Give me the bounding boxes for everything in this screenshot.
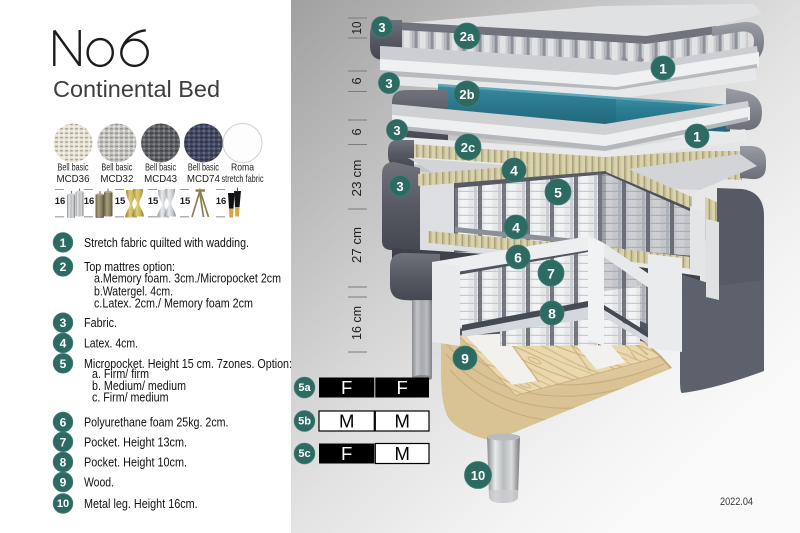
svg-text:Roma: Roma bbox=[231, 162, 254, 174]
svg-text:stretch fabric: stretch fabric bbox=[222, 173, 264, 185]
svg-text:M: M bbox=[339, 411, 354, 432]
svg-text:F: F bbox=[396, 377, 407, 398]
svg-text:5: 5 bbox=[60, 357, 67, 371]
svg-text:2: 2 bbox=[60, 260, 67, 274]
svg-text:5b: 5b bbox=[298, 416, 311, 428]
svg-text:10: 10 bbox=[350, 21, 364, 34]
svg-text:Bell basic: Bell basic bbox=[188, 162, 219, 174]
svg-text:Latex. 4cm.: Latex. 4cm. bbox=[84, 335, 138, 350]
svg-text:6: 6 bbox=[350, 77, 364, 84]
svg-text:Polyurethane foam 25kg. 2cm.: Polyurethane foam 25kg. 2cm. bbox=[84, 415, 229, 430]
svg-text:8: 8 bbox=[60, 456, 67, 470]
svg-text:Continental Bed: Continental Bed bbox=[53, 76, 220, 102]
svg-text:3: 3 bbox=[385, 76, 392, 91]
svg-text:7: 7 bbox=[60, 435, 67, 449]
svg-text:16 cm: 16 cm bbox=[350, 306, 364, 340]
svg-text:Wood.: Wood. bbox=[84, 475, 114, 490]
svg-text:Bell basic: Bell basic bbox=[101, 162, 132, 174]
svg-text:1: 1 bbox=[693, 129, 701, 145]
svg-text:MCD32: MCD32 bbox=[100, 173, 133, 185]
svg-text:5a: 5a bbox=[298, 382, 311, 394]
svg-text:5: 5 bbox=[554, 185, 562, 201]
svg-text:6: 6 bbox=[514, 250, 522, 266]
svg-text:2a: 2a bbox=[460, 29, 475, 44]
svg-text:4: 4 bbox=[510, 163, 518, 179]
svg-text:1: 1 bbox=[659, 61, 667, 77]
svg-text:Fabric.: Fabric. bbox=[84, 315, 117, 330]
svg-text:9: 9 bbox=[461, 351, 469, 367]
svg-text:2b: 2b bbox=[459, 87, 474, 102]
svg-text:23 cm: 23 cm bbox=[350, 160, 364, 197]
svg-text:MCD36: MCD36 bbox=[57, 173, 90, 185]
svg-text:Stretch fabric quilted with wa: Stretch fabric quilted with wadding. bbox=[84, 235, 249, 250]
svg-text:3: 3 bbox=[396, 179, 403, 194]
svg-text:Bell basic: Bell basic bbox=[145, 162, 176, 174]
svg-text:Pocket. Height 13cm.: Pocket. Height 13cm. bbox=[84, 434, 187, 449]
svg-text:2022.04: 2022.04 bbox=[720, 496, 753, 508]
svg-text:M: M bbox=[394, 411, 409, 432]
svg-text:4: 4 bbox=[60, 336, 67, 350]
svg-text:3: 3 bbox=[60, 316, 67, 330]
svg-text:c.Latex. 2cm./ Memory foam 2cm: c.Latex. 2cm./ Memory foam 2cm bbox=[94, 296, 253, 311]
svg-text:8: 8 bbox=[548, 306, 556, 322]
svg-text:6: 6 bbox=[60, 416, 67, 430]
svg-text:27 cm: 27 cm bbox=[350, 227, 364, 263]
svg-text:15: 15 bbox=[115, 196, 126, 207]
svg-text:7: 7 bbox=[547, 266, 555, 282]
svg-text:5c: 5c bbox=[298, 448, 310, 460]
svg-text:F: F bbox=[341, 377, 352, 398]
svg-text:10: 10 bbox=[471, 468, 485, 483]
svg-text:6: 6 bbox=[350, 128, 364, 135]
svg-text:c. Firm/ medium: c. Firm/ medium bbox=[92, 389, 169, 404]
svg-text:10: 10 bbox=[57, 498, 69, 510]
svg-text:1: 1 bbox=[60, 236, 67, 250]
svg-text:F: F bbox=[341, 443, 352, 464]
svg-text:MCD43: MCD43 bbox=[144, 173, 177, 185]
svg-text:Bell basic: Bell basic bbox=[58, 162, 89, 174]
svg-text:3: 3 bbox=[378, 20, 385, 35]
svg-text:16: 16 bbox=[84, 196, 95, 207]
svg-text:2c: 2c bbox=[461, 140, 475, 155]
svg-text:15: 15 bbox=[180, 196, 191, 207]
svg-text:Metal leg. Height 16cm.: Metal leg. Height 16cm. bbox=[84, 496, 198, 511]
svg-text:9: 9 bbox=[60, 476, 67, 490]
svg-text:16: 16 bbox=[216, 196, 227, 207]
svg-text:4: 4 bbox=[512, 220, 520, 236]
svg-text:16: 16 bbox=[55, 196, 66, 207]
svg-text:MCD74: MCD74 bbox=[187, 173, 220, 185]
svg-text:M: M bbox=[394, 443, 409, 464]
svg-text:3: 3 bbox=[393, 123, 400, 138]
svg-text:Pocket. Height 10cm.: Pocket. Height 10cm. bbox=[84, 455, 187, 470]
svg-text:15: 15 bbox=[148, 196, 159, 207]
